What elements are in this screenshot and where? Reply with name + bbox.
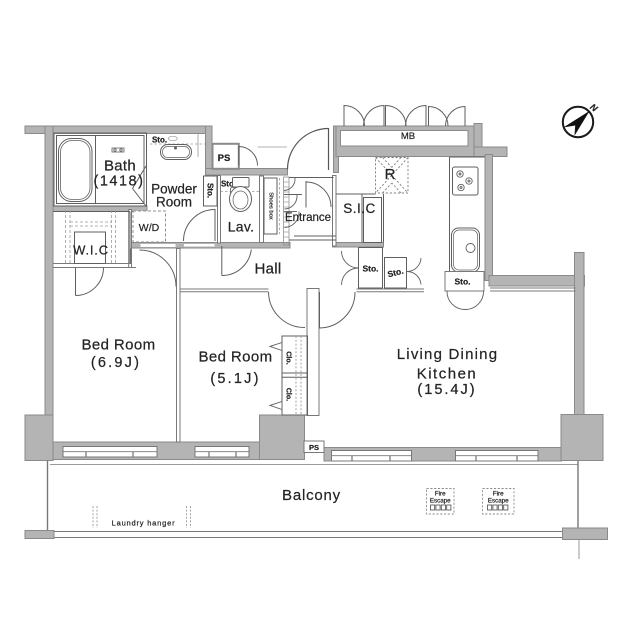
svg-text:(15.4J): (15.4J) bbox=[417, 382, 476, 398]
svg-text:Clo.: Clo. bbox=[285, 351, 292, 364]
svg-text:Escape: Escape bbox=[488, 498, 509, 505]
svg-text:Escape: Escape bbox=[430, 498, 451, 505]
svg-text:(6.9J): (6.9J) bbox=[91, 355, 141, 371]
svg-text:(5.1J): (5.1J) bbox=[210, 371, 260, 387]
svg-text:Bath: Bath bbox=[104, 158, 136, 175]
svg-text:Entrance: Entrance bbox=[285, 212, 331, 224]
svg-text:Shoes box: Shoes box bbox=[268, 192, 274, 219]
svg-text:Sto.: Sto. bbox=[362, 264, 378, 274]
svg-text:S.I.C: S.I.C bbox=[343, 201, 376, 216]
svg-text:W.I.C: W.I.C bbox=[73, 243, 109, 258]
svg-text:(1418): (1418) bbox=[94, 174, 145, 190]
svg-text:PS: PS bbox=[218, 153, 231, 164]
svg-text:Living Dining: Living Dining bbox=[397, 346, 498, 363]
svg-text:Lav.: Lav. bbox=[228, 219, 255, 235]
svg-text:Clo.: Clo. bbox=[285, 388, 292, 401]
svg-text:Bed Room: Bed Room bbox=[81, 337, 155, 354]
svg-text:Bed Room: Bed Room bbox=[198, 349, 272, 366]
svg-text:Kitchen: Kitchen bbox=[417, 366, 478, 383]
svg-text:MB: MB bbox=[401, 131, 415, 142]
svg-text:W/D: W/D bbox=[139, 222, 160, 234]
svg-text:R: R bbox=[385, 166, 396, 183]
svg-text:Sto.: Sto. bbox=[206, 183, 215, 198]
svg-text:Hall: Hall bbox=[254, 261, 281, 278]
svg-text:Fire: Fire bbox=[493, 491, 504, 498]
svg-text:PS: PS bbox=[309, 443, 319, 452]
svg-text:Room: Room bbox=[156, 195, 192, 210]
svg-text:Sto.: Sto. bbox=[454, 277, 470, 287]
svg-text:Sto.: Sto. bbox=[152, 136, 167, 145]
svg-text:Balcony: Balcony bbox=[282, 487, 341, 504]
svg-text:Laundry hanger: Laundry hanger bbox=[112, 519, 176, 528]
svg-text:Fire: Fire bbox=[435, 491, 446, 498]
